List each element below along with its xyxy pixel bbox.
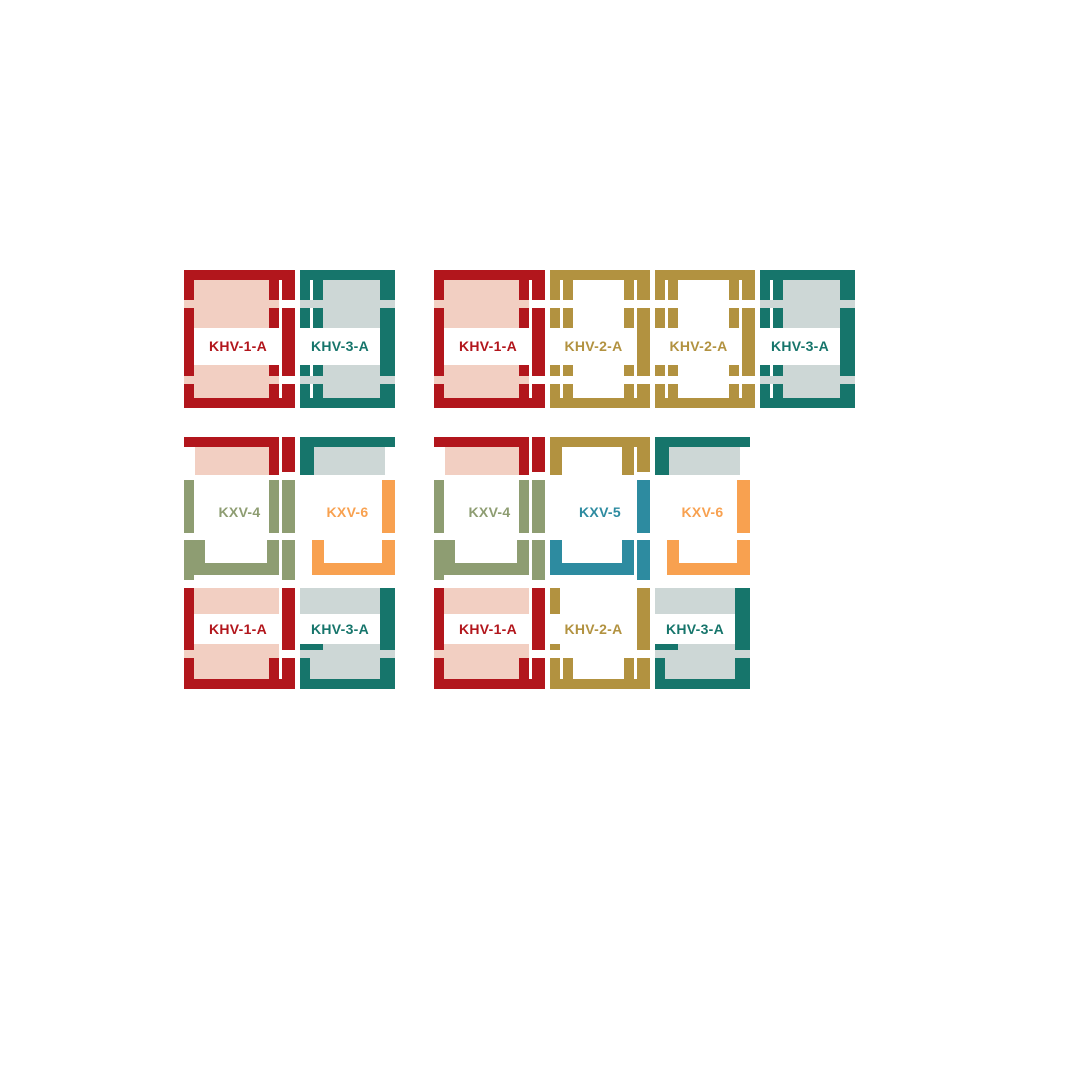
unit-khv-1-a: KHV-1-A: [184, 270, 295, 408]
unit-label: KHV-3-A: [300, 328, 380, 365]
unit-khv-3-a: KHV-3-A: [300, 588, 395, 689]
unit-label: KHV-1-A: [194, 614, 282, 644]
unit-khv-1-a: KHV-1-A: [434, 270, 545, 408]
unit-label: KHV-1-A: [194, 328, 282, 365]
unit-khv-3-a: KHV-3-A: [760, 270, 855, 408]
flashing-combination-diagram: KHV-1-A KHV-3-A KHV-1-A KHV-2-A KHV-2-A …: [0, 0, 1066, 1066]
unit-label: KHV-2-A: [550, 328, 637, 365]
unit-label: KHV-3-A: [760, 328, 840, 365]
unit-khv-3-a: KHV-3-A: [300, 270, 395, 408]
group-three-by-two: KXV-4 KXV-5 KXV-6 KHV-1-A KHV-2-A KHV-3-…: [434, 437, 750, 689]
unit-khv-2-a: KHV-2-A: [655, 270, 755, 408]
unit-label: KHV-1-A: [444, 328, 532, 365]
unit-label: KXV-6: [300, 495, 395, 529]
unit-label: KXV-5: [550, 495, 650, 529]
unit-label: KHV-3-A: [655, 614, 735, 644]
unit-khv-2-a: KHV-2-A: [550, 270, 650, 408]
unit-kxv-5: KXV-5: [550, 437, 650, 580]
unit-khv-2-a: KHV-2-A: [550, 588, 650, 689]
group-four-side-by-side: KHV-1-A KHV-2-A KHV-2-A KHV-3-A: [434, 270, 855, 408]
unit-label: KXV-6: [655, 495, 750, 529]
unit-khv-3-a: KHV-3-A: [655, 588, 750, 689]
unit-kxv-6: KXV-6: [300, 437, 395, 580]
group-two-by-two: KXV-4 KXV-6 KHV-1-A KHV-3-A: [184, 437, 395, 689]
unit-label: KXV-4: [434, 495, 545, 529]
unit-label: KHV-1-A: [444, 614, 532, 644]
unit-kxv-4: KXV-4: [184, 437, 295, 580]
unit-kxv-6: KXV-6: [655, 437, 750, 580]
group-two-side-by-side: KHV-1-A KHV-3-A: [184, 270, 395, 408]
unit-label: KHV-2-A: [655, 328, 742, 365]
unit-kxv-4: KXV-4: [434, 437, 545, 580]
unit-label: KXV-4: [184, 495, 295, 529]
unit-khv-1-a: KHV-1-A: [434, 588, 545, 689]
unit-label: KHV-3-A: [300, 614, 380, 644]
unit-label: KHV-2-A: [550, 614, 637, 644]
unit-khv-1-a: KHV-1-A: [184, 588, 295, 689]
